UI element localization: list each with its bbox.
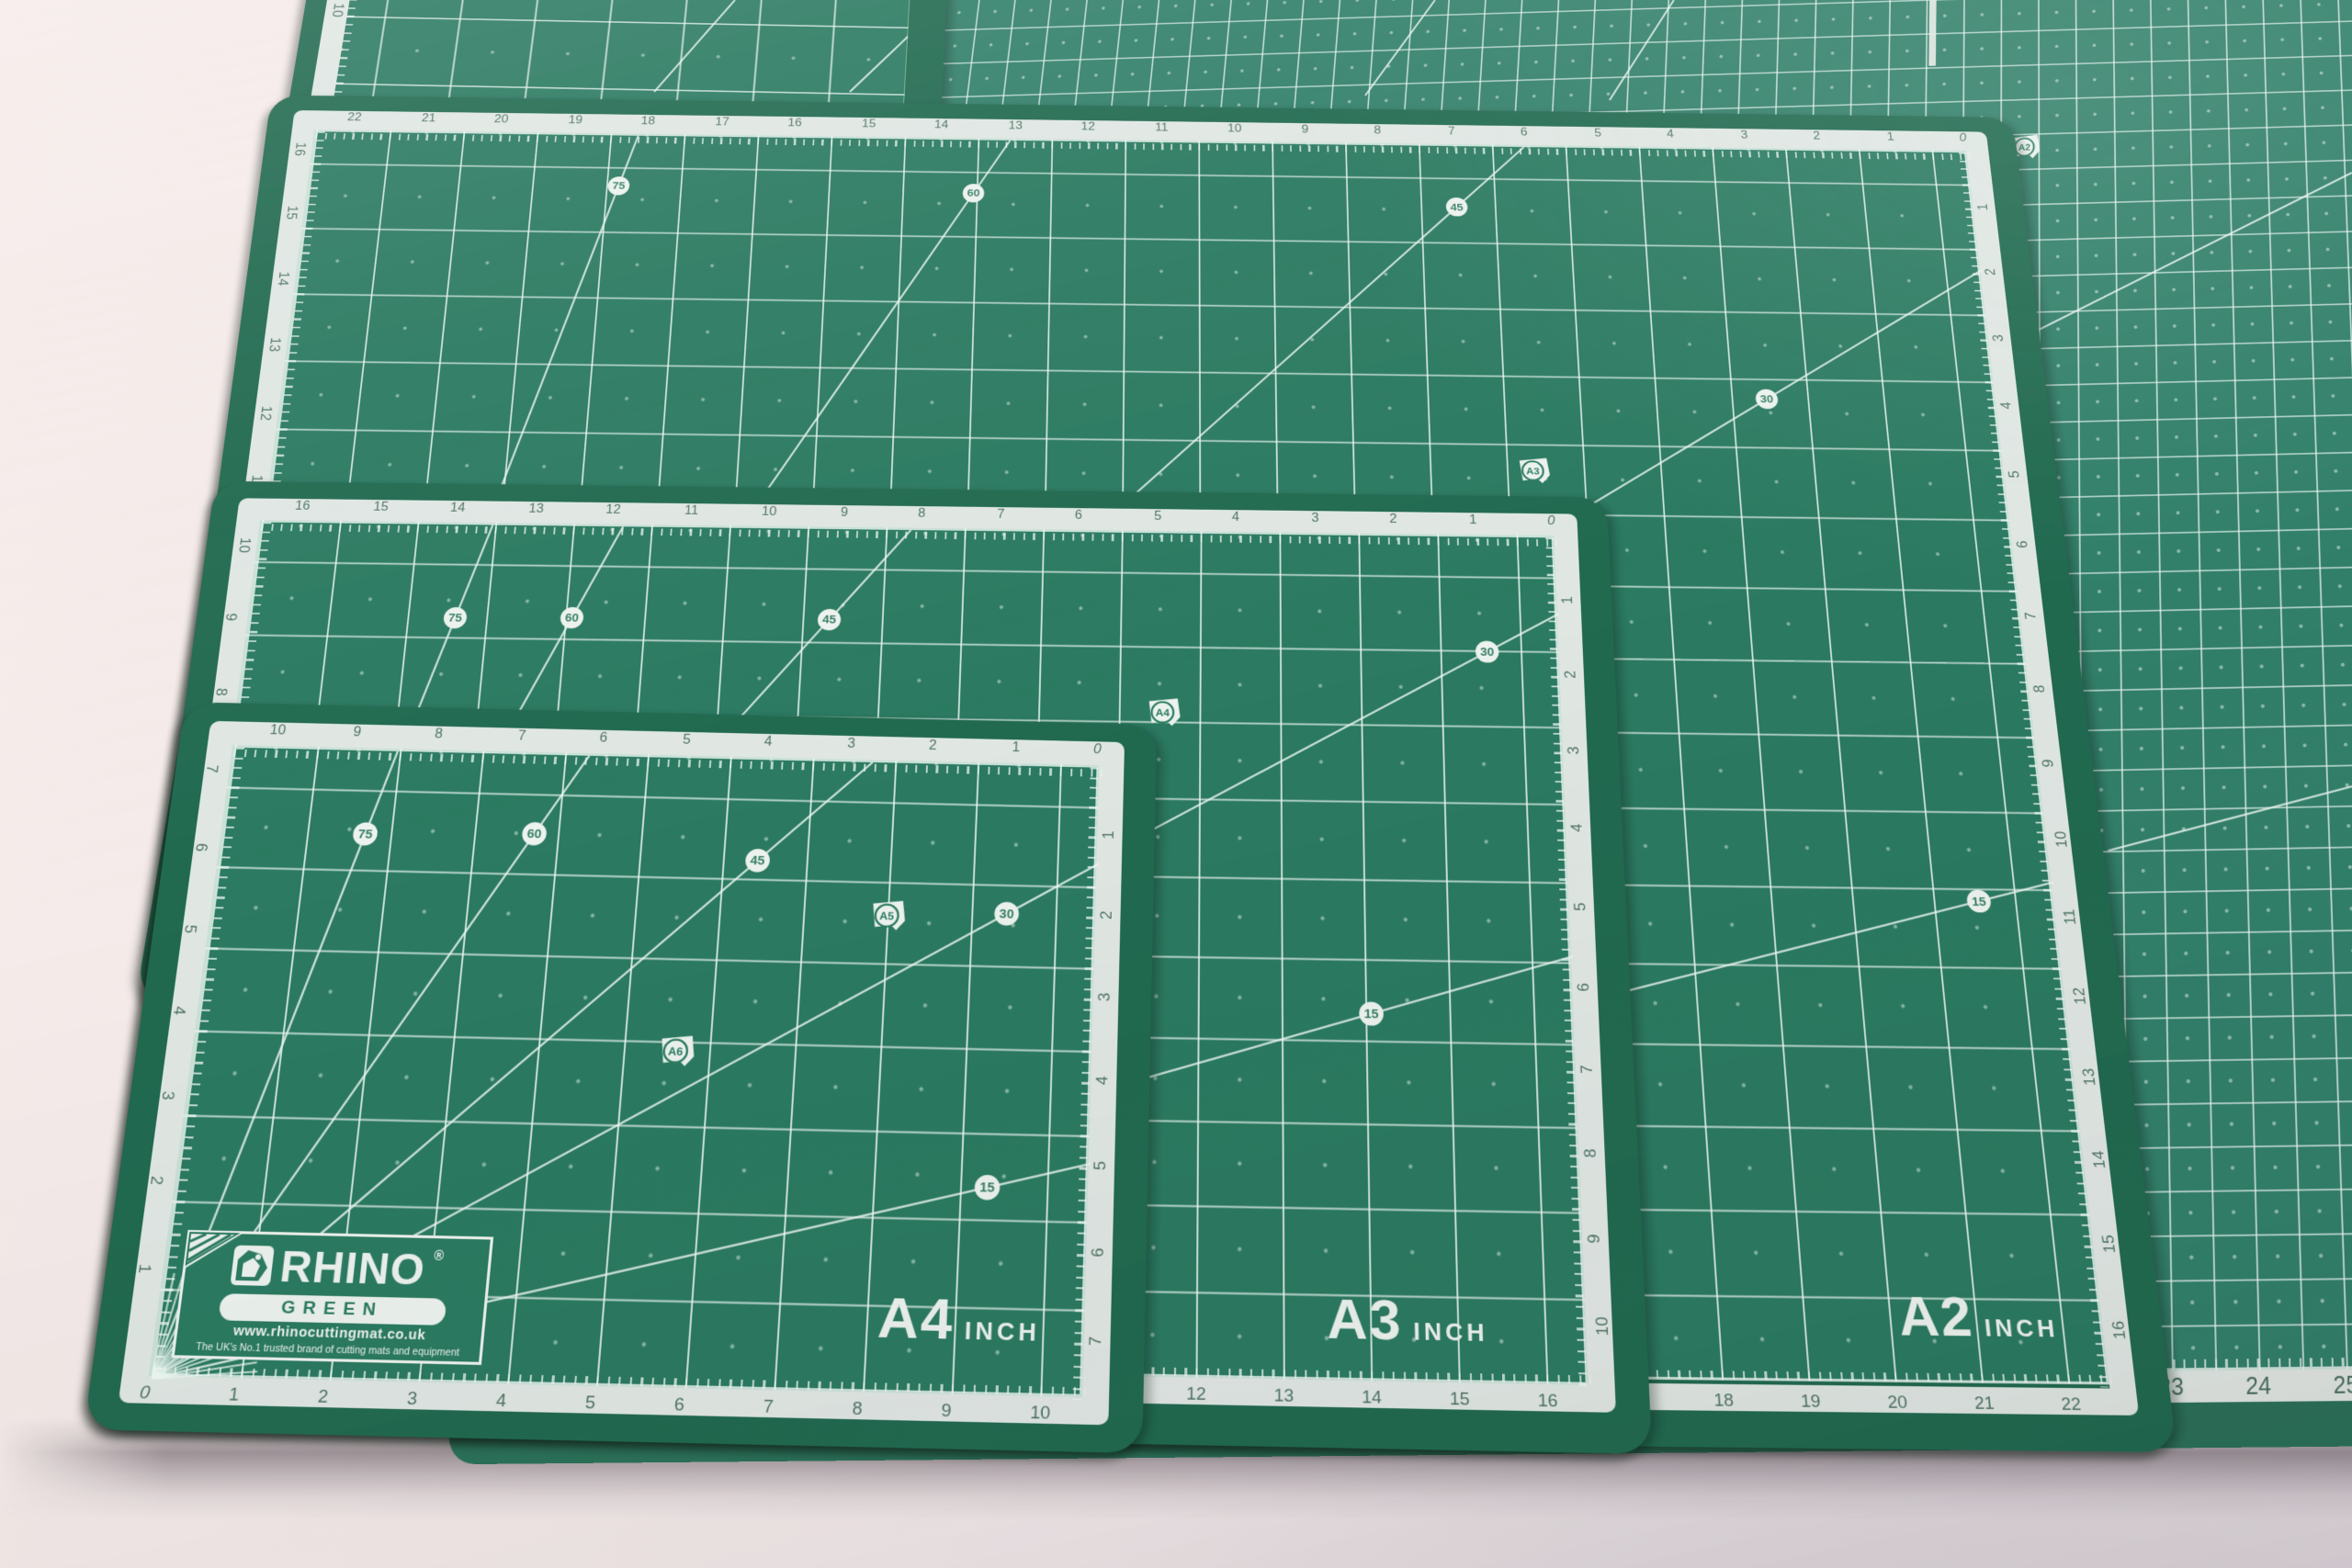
svg-text:60: 60 [967, 188, 979, 198]
svg-text:75: 75 [612, 181, 627, 191]
svg-text:15: 15 [1364, 1007, 1379, 1021]
svg-text:15: 15 [979, 1179, 995, 1195]
svg-text:A5: A5 [879, 911, 894, 923]
svg-text:45: 45 [1450, 202, 1464, 213]
svg-text:60: 60 [526, 827, 542, 841]
svg-text:A6: A6 [668, 1046, 684, 1058]
svg-text:30: 30 [999, 907, 1013, 921]
svg-text:75: 75 [447, 612, 463, 625]
svg-text:30: 30 [1759, 394, 1773, 405]
svg-text:A3: A3 [1526, 467, 1540, 477]
svg-text:75: 75 [357, 827, 374, 841]
svg-text:60: 60 [564, 612, 579, 625]
svg-text:A2: A2 [2018, 142, 2030, 152]
svg-text:45: 45 [822, 614, 837, 626]
svg-text:A4: A4 [1156, 707, 1170, 719]
svg-text:45: 45 [750, 853, 765, 868]
svg-text:30: 30 [1480, 646, 1495, 660]
svg-text:15: 15 [1972, 896, 1987, 908]
